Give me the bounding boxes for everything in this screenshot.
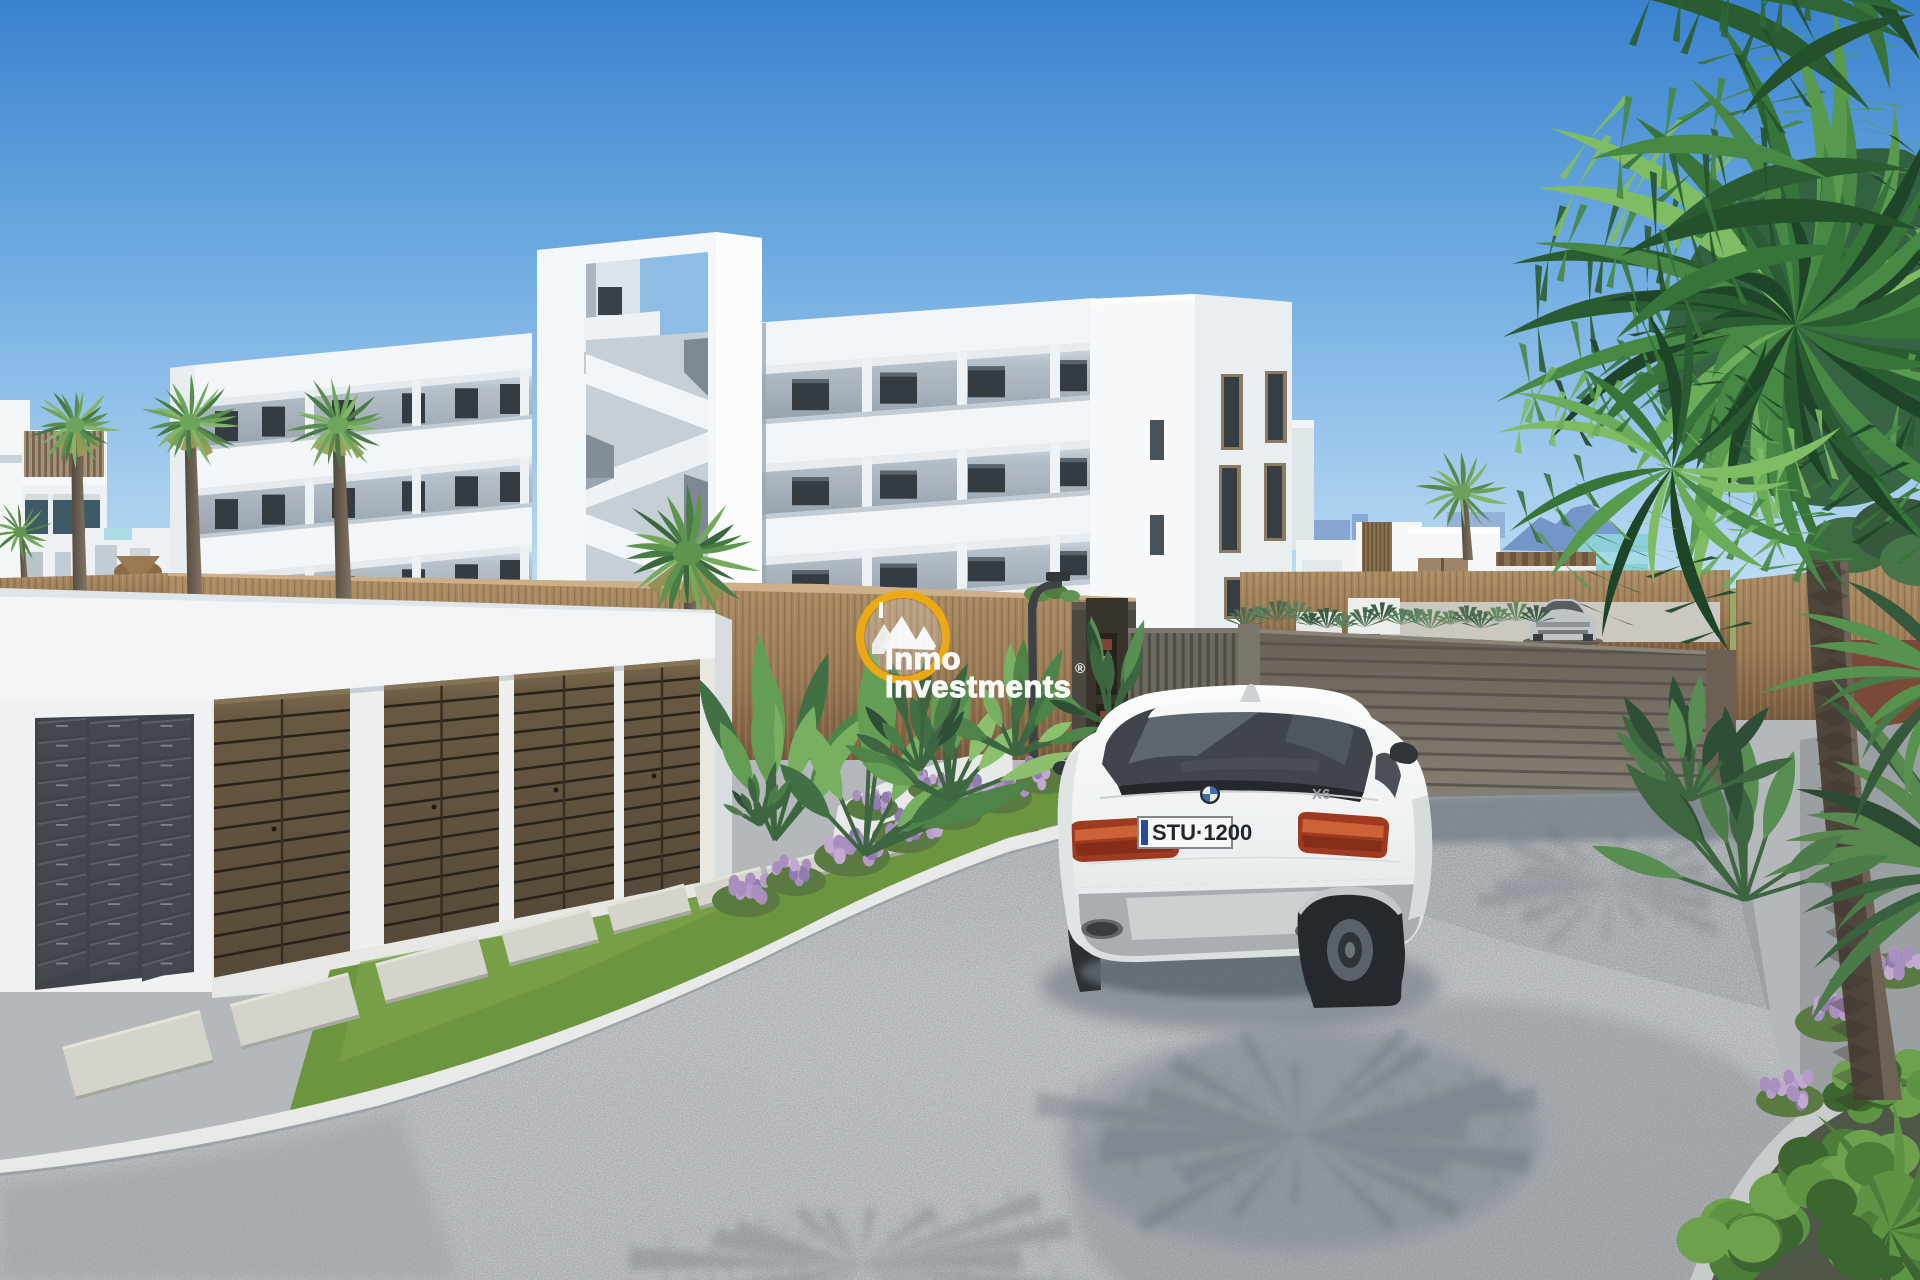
svg-text:STU·1200: STU·1200 xyxy=(1152,820,1252,845)
svg-text:X6: X6 xyxy=(1312,786,1330,803)
svg-text:®: ® xyxy=(1075,660,1086,676)
svg-text:Investments: Investments xyxy=(885,669,1071,704)
